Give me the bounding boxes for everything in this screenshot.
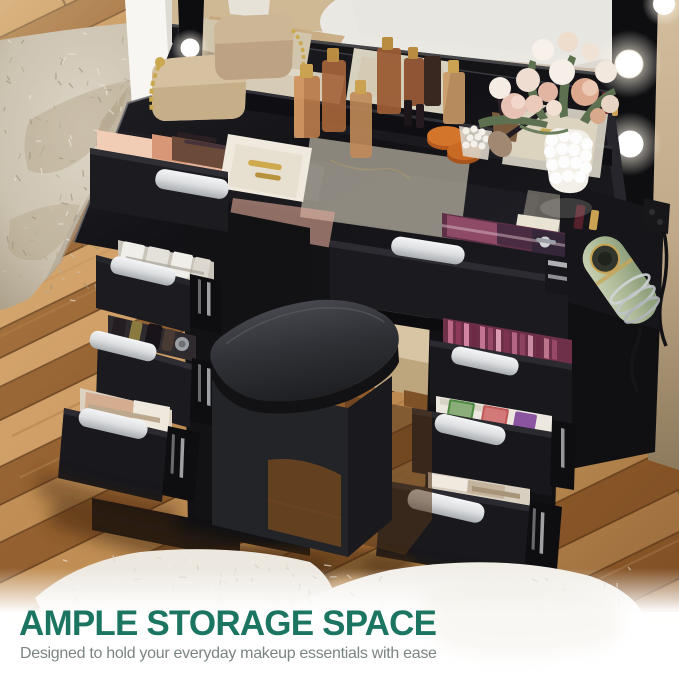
svg-text:AMPLE STORAGE SPACE: AMPLE STORAGE SPACE [19, 604, 436, 643]
svg-text:Designed to hold your everyday: Designed to hold your everyday makeup es… [20, 645, 437, 662]
